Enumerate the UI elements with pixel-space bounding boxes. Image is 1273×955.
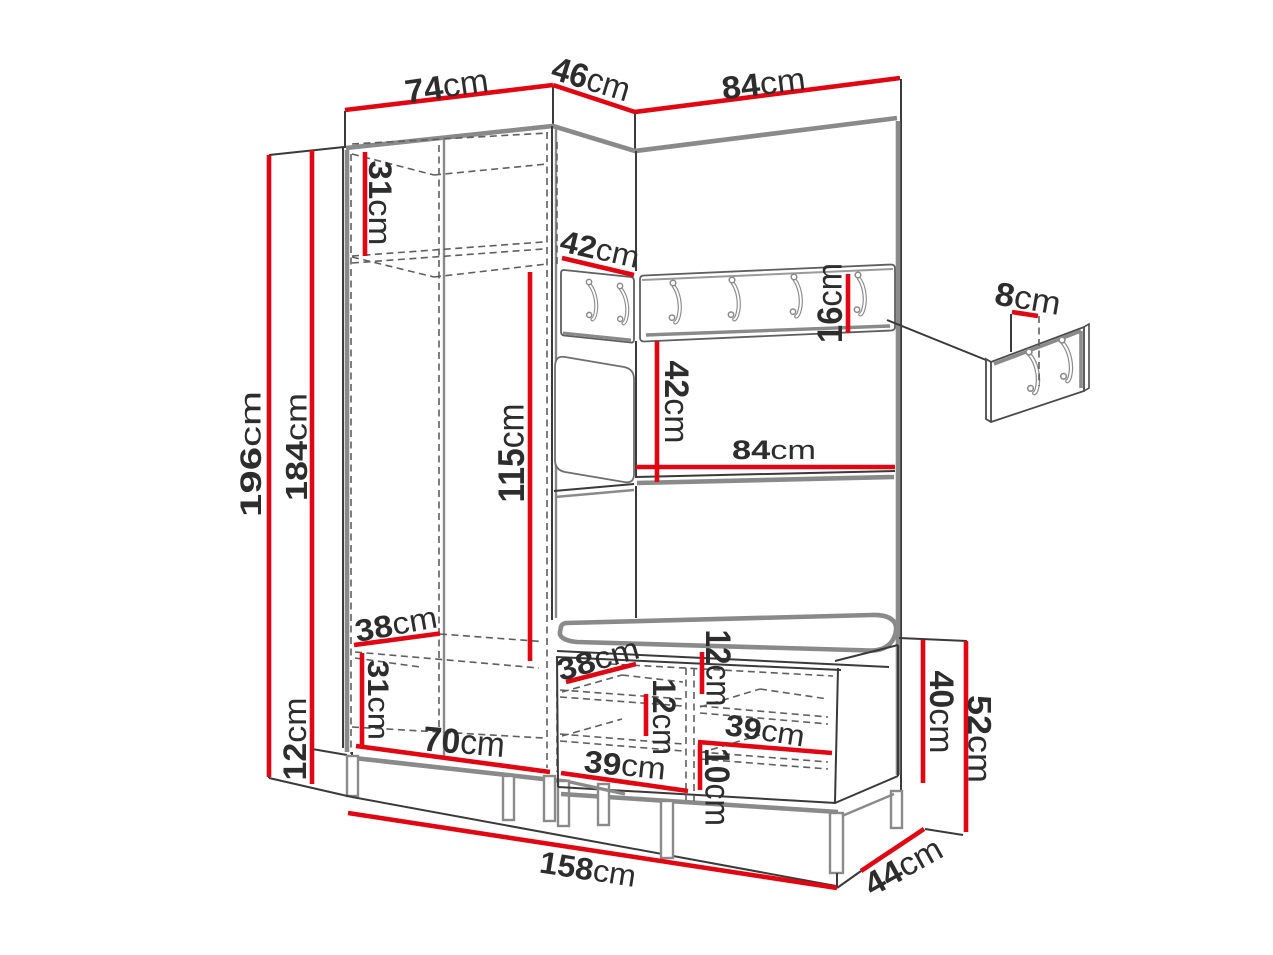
svg-text:16cm: 16cm (811, 263, 850, 343)
svg-text:196cm: 196cm (235, 391, 268, 517)
svg-text:10cm: 10cm (698, 748, 737, 826)
svg-text:12cm: 12cm (646, 679, 682, 755)
svg-text:31cm: 31cm (362, 161, 398, 246)
svg-text:84cm: 84cm (732, 435, 816, 465)
svg-text:42cm: 42cm (657, 361, 695, 444)
svg-text:70cm: 70cm (421, 719, 506, 765)
svg-text:12cm: 12cm (277, 698, 313, 781)
svg-text:115cm: 115cm (491, 404, 532, 503)
svg-text:40cm: 40cm (922, 671, 960, 754)
svg-text:184cm: 184cm (279, 393, 314, 501)
svg-text:12cm: 12cm (699, 630, 738, 707)
svg-text:31cm: 31cm (362, 660, 395, 740)
svg-text:52cm: 52cm (962, 695, 999, 783)
